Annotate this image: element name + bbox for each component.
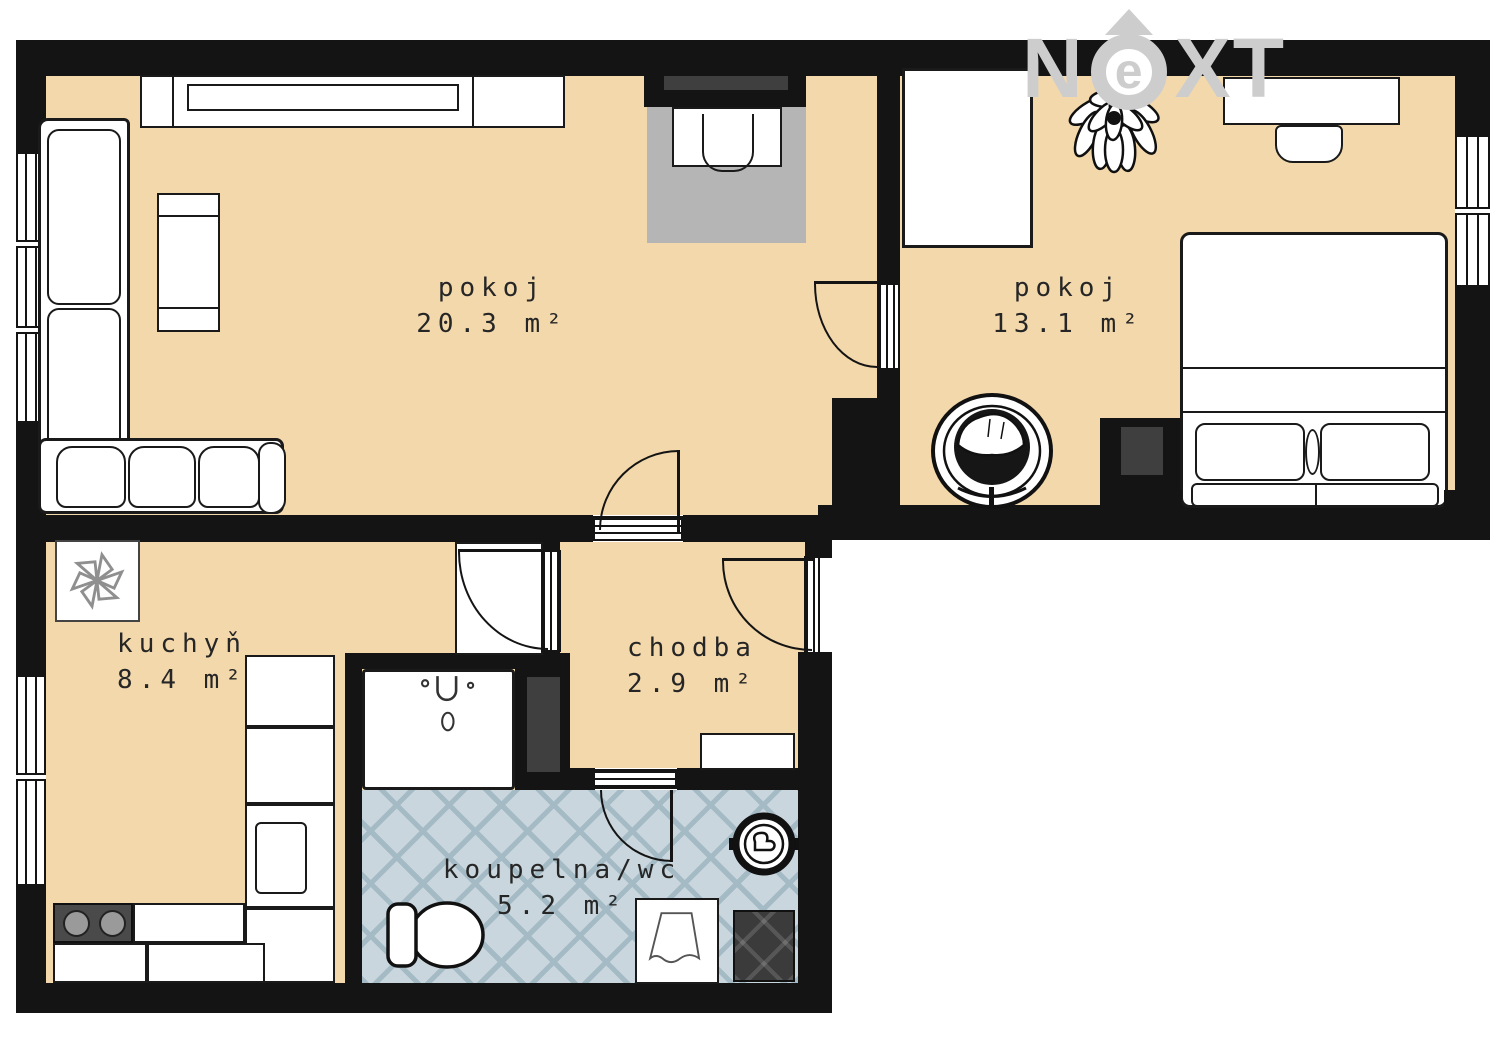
wall-right-mid [1455, 287, 1490, 540]
wall-partition-lower [877, 370, 900, 515]
room-label-kitchen: kuchyň 8.4 m² [117, 626, 247, 698]
pillow [1320, 423, 1430, 481]
wall-hall-bath-left [570, 768, 595, 790]
tv-sideboard [140, 75, 565, 128]
niche-shelf [664, 76, 788, 90]
sofa-armrest [258, 442, 286, 514]
burner [63, 910, 90, 937]
wall-right-upper [1455, 40, 1490, 135]
room-name: koupelna/wc [443, 852, 681, 888]
floor-plan: { "watermark": { "letters": ["N", "e", "… [0, 0, 1500, 1060]
kitchen-appliance-fan [55, 540, 140, 622]
room-area: 5.2 m² [443, 888, 681, 924]
wall-mid-right [683, 515, 830, 542]
wall-mid-left [16, 515, 593, 542]
room-name: kuchyň [117, 626, 247, 662]
wall-right-lower [798, 652, 832, 983]
burner [99, 910, 126, 937]
room-label-bathroom: koupelna/wc 5.2 m² [443, 852, 681, 924]
kitchen-sink-unit [245, 804, 335, 908]
kitchen-counter [147, 943, 265, 983]
wall-bathroom-left [345, 653, 362, 1013]
kitchen-counter [53, 943, 147, 983]
wardrobe [902, 68, 1033, 248]
logo-o-ring: e [1091, 34, 1167, 110]
room-label-bedroom: pokoj 13.1 m² [992, 270, 1144, 342]
room-label-hallway: chodba 2.9 m² [627, 630, 757, 702]
headboard [1191, 483, 1439, 507]
logo-letter-n: N [1022, 26, 1085, 110]
desk-chair [1275, 125, 1343, 163]
room-name: chodba [627, 630, 757, 666]
coffee-table [157, 193, 220, 332]
radiator [1121, 427, 1163, 475]
double-bed [1180, 232, 1448, 508]
faucet-icon [413, 674, 493, 736]
washing-machine-icon [729, 809, 799, 879]
wall-bathroom-top [345, 653, 570, 669]
stove [53, 903, 133, 943]
bed-leg [1170, 490, 1182, 506]
bedroom-window [1455, 135, 1490, 287]
shaft-inset [527, 677, 560, 772]
hall-cabinet [700, 733, 795, 770]
shower-tiles [733, 910, 795, 982]
next-logo: N e X T [1022, 26, 1286, 110]
room-name: pokoj [416, 270, 568, 306]
wall-partition-upper [877, 40, 900, 283]
papasan-chair [930, 393, 1054, 511]
door-frame-bathroom [593, 769, 677, 789]
sink [255, 822, 307, 894]
pillow [1195, 423, 1305, 481]
wall-hall-bath-right [677, 768, 818, 790]
door-frame-living-bedroom [877, 283, 900, 370]
logo-letter-e: e [1106, 49, 1152, 95]
kitchen-window [16, 675, 46, 886]
logo-letter-x: X [1175, 26, 1233, 110]
bathtub [362, 669, 515, 790]
room-area: 8.4 m² [117, 662, 247, 698]
room-area: 13.1 m² [992, 306, 1144, 342]
bed-leg [1444, 490, 1456, 506]
fan-icon [57, 542, 137, 619]
niche-chair [702, 114, 754, 172]
wall-bottom [16, 983, 832, 1013]
room-area: 20.3 m² [416, 306, 568, 342]
sofa-cushion [128, 446, 196, 508]
bed-runner [1305, 429, 1320, 475]
room-area: 2.9 m² [627, 666, 757, 702]
logo-letter-t: T [1233, 26, 1286, 110]
sofa-cushion [47, 129, 121, 305]
kitchen-counter [245, 655, 335, 727]
room-label-living: pokoj 20.3 m² [416, 270, 568, 342]
sofa-cushion [56, 446, 126, 508]
sofa-cushion [198, 446, 260, 508]
kitchen-counter [133, 903, 245, 943]
kitchen-counter [245, 727, 335, 804]
room-name: pokoj [992, 270, 1144, 306]
logo-roof-icon [1105, 9, 1153, 35]
